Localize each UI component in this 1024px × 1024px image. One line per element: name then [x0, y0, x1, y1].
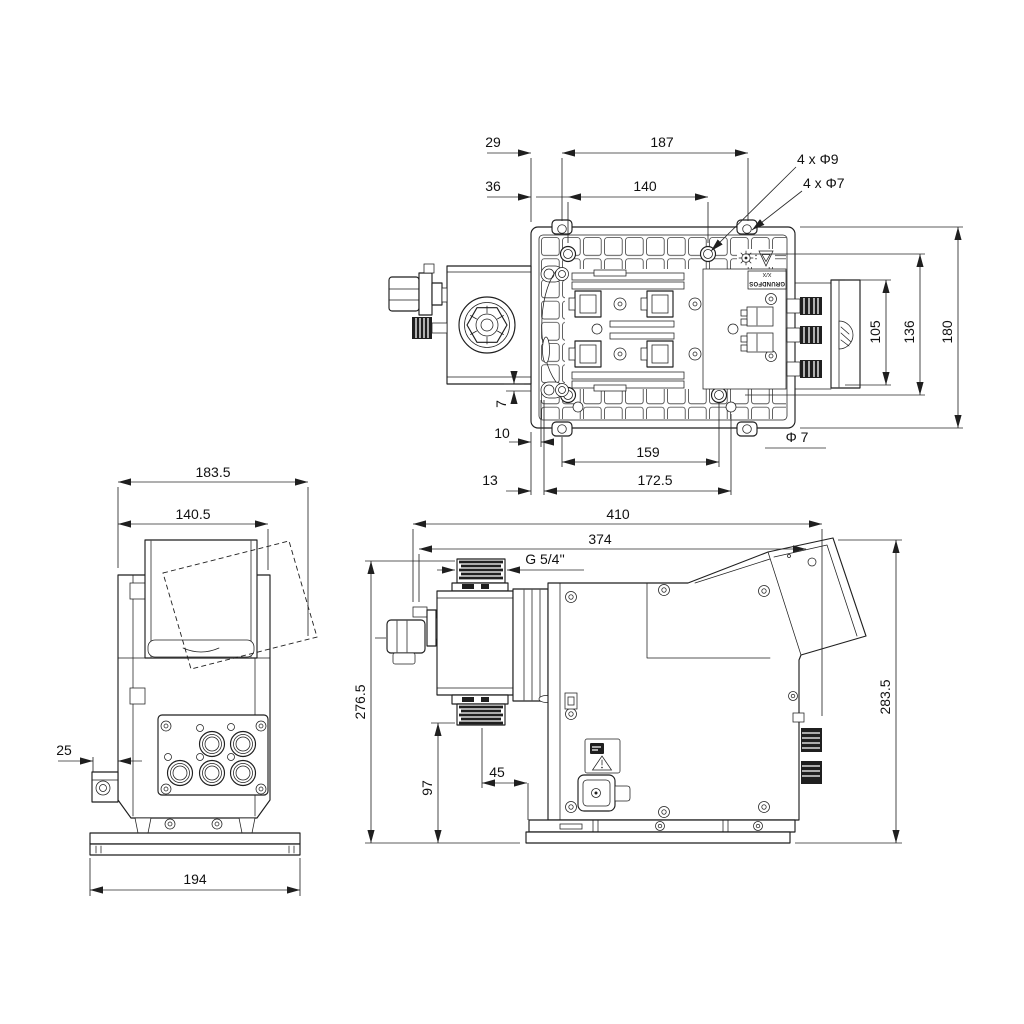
dim-194: 194 [90, 858, 300, 896]
mounting-plate: GRUNDFOS X/X [531, 220, 795, 436]
dim-276-5-label: 276.5 [352, 684, 368, 719]
pump-head-side [437, 591, 513, 695]
brand-text: GRUNDFOS [749, 280, 785, 286]
valve-cap [459, 297, 515, 353]
discharge-valve [452, 559, 508, 591]
dim-136-label: 136 [901, 320, 917, 344]
dim-phi7-label: Φ 7 [786, 429, 809, 445]
base-plate-side [526, 820, 795, 843]
dim-283-5-label: 283.5 [877, 679, 893, 714]
dim-410-label: 410 [606, 506, 630, 522]
dim-183-5-label: 183.5 [195, 464, 230, 480]
dim-g54-label: G 5/4'' [525, 551, 565, 567]
front-panel-back [145, 540, 317, 669]
tab-hole [558, 425, 567, 434]
dim-187-label: 187 [650, 134, 674, 150]
instruction-icon [590, 743, 604, 754]
dim-10-label: 10 [494, 425, 510, 441]
dim-29-label: 29 [485, 134, 501, 150]
safety-label [585, 739, 620, 773]
leader-4xphi7: 4 x Φ7 [752, 175, 845, 230]
dim-172-5-label: 172.5 [637, 472, 672, 488]
dim-13-label: 13 [482, 472, 498, 488]
suction-valve [452, 695, 508, 725]
dim-25-label: 25 [56, 742, 72, 758]
terminal-zone: GRUNDFOS X/X [703, 269, 786, 389]
back-view: 183.5 140.5 25 194 [56, 464, 317, 896]
base-plate-back [90, 818, 300, 855]
dim-97: 97 [419, 723, 455, 843]
technical-drawing-canvas: GRUNDFOS X/X [0, 0, 1024, 1024]
dim-13: 13 [482, 400, 544, 495]
tab-hole [743, 225, 752, 234]
side-view: 410 374 G 5/4'' 276.5 283.5 97 [352, 506, 902, 843]
dim-180-label: 180 [939, 320, 955, 344]
cable-gland-side [387, 607, 445, 664]
dim-36-label: 36 [485, 178, 501, 194]
head-flange [513, 589, 553, 703]
panel-lip [148, 640, 254, 657]
tab-hole [743, 425, 752, 434]
housing-side [548, 538, 866, 820]
dim-140: 140 [568, 178, 708, 243]
connector-plate [158, 715, 268, 795]
dim-45-label: 45 [489, 764, 505, 780]
label-phi7: Φ 7 [765, 429, 826, 448]
dim-45: 45 [482, 728, 528, 820]
pump-head-top [447, 266, 531, 384]
dim-159-label: 159 [636, 444, 660, 460]
panel-screw [808, 558, 816, 566]
top-view: GRUNDFOS X/X [389, 134, 963, 495]
dim-140-5-label: 140.5 [175, 506, 210, 522]
dim-7-label: 7 [493, 400, 509, 408]
wall-bracket [92, 772, 118, 802]
gear-icon [739, 251, 753, 265]
cable-gland-top [389, 264, 447, 315]
tab-hole [558, 225, 567, 234]
technical-drawing-page: GRUNDFOS X/X [0, 0, 1024, 1024]
dim-140-label: 140 [633, 178, 657, 194]
dim-4xphi9-label: 4 x Φ9 [797, 151, 839, 167]
control-knobs-top [787, 283, 831, 389]
dim-105-label: 105 [867, 320, 883, 344]
control-panel-top [831, 280, 860, 388]
adjust-knob-top [412, 317, 447, 339]
variant-text: X/X [762, 271, 771, 277]
dim-374-label: 374 [588, 531, 612, 547]
dim-4xphi7-label: 4 x Φ7 [803, 175, 845, 191]
dim-97-label: 97 [419, 780, 435, 796]
dim-194-label: 194 [183, 871, 207, 887]
